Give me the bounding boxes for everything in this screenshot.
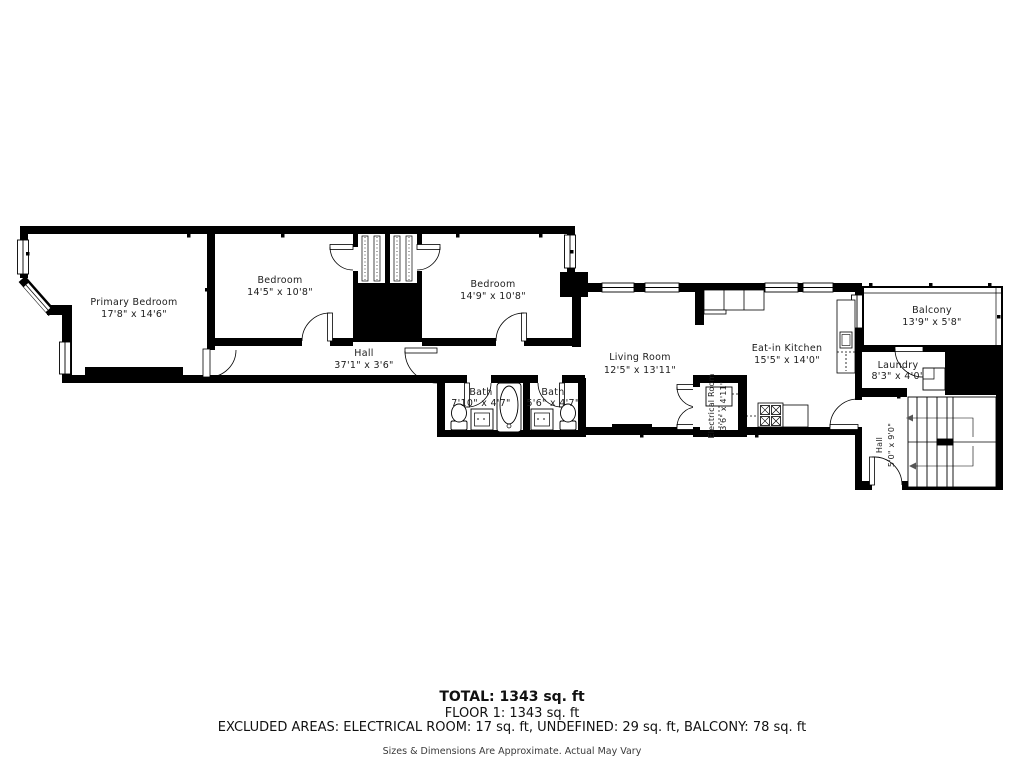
room-laundry: Laundry 8'3" x 4'0" [871, 360, 924, 382]
door-bedroom-2 [496, 313, 527, 341]
door-kitchen-hall [830, 399, 858, 430]
door-openings [353, 247, 863, 427]
room-living-room: Living Room 12'5" x 13'11" [604, 352, 676, 376]
svg-text:7'10" x 4'7": 7'10" x 4'7" [451, 398, 510, 409]
svg-text:14'9" x 10'8": 14'9" x 10'8" [460, 291, 526, 302]
vanity-sink [531, 409, 553, 430]
vanity-sink [471, 409, 493, 430]
room-eat-in-kitchen: Eat-in Kitchen 15'5" x 14'0" [752, 343, 823, 366]
svg-text:14'5" x 10'8": 14'5" x 10'8" [247, 287, 313, 298]
svg-text:5'6" x 4'7": 5'6" x 4'7" [526, 398, 579, 409]
floor-area: FLOOR 1: 1343 sq. ft [0, 707, 1024, 721]
svg-text:12'5" x 13'11": 12'5" x 13'11" [604, 365, 676, 376]
counter-sink [837, 300, 855, 373]
svg-text:Balcony: Balcony [912, 305, 952, 316]
door-primary-bedroom [203, 349, 236, 377]
svg-text:15'5" x 14'0": 15'5" x 14'0" [754, 355, 820, 366]
svg-text:3'6" x 4'11": 3'6" x 4'11" [719, 381, 728, 430]
svg-text:Bedroom: Bedroom [257, 275, 302, 286]
total-area: TOTAL: 1343 sq. ft [0, 690, 1024, 705]
floor-plan: Primary Bedroom 17'8" x 14'6" Bedroom 14… [0, 0, 1024, 768]
room-primary-bedroom: Primary Bedroom 17'8" x 14'6" [90, 297, 177, 320]
door-bedroom-1 [302, 313, 333, 341]
svg-text:Bath: Bath [469, 387, 492, 398]
door-stair-hall [870, 457, 903, 485]
room-bedroom-2: Bedroom 14'9" x 10'8" [460, 279, 526, 302]
laundry-appliance [923, 368, 945, 390]
room-bedroom-1: Bedroom 14'5" x 10'8" [247, 275, 313, 298]
svg-text:Laundry: Laundry [878, 360, 919, 371]
window [765, 283, 798, 292]
svg-text:Eat-in Kitchen: Eat-in Kitchen [752, 343, 823, 354]
window [803, 283, 833, 292]
room-bath-2: Bath 5'6" x 4'7" [526, 387, 579, 409]
door-closet-1 [330, 245, 353, 271]
summary-block: TOTAL: 1343 sq. ft FLOOR 1: 1343 sq. ft … [0, 690, 1024, 757]
upper-cabinets [704, 290, 764, 314]
stair-landing-divider [937, 439, 953, 445]
svg-text:Bath: Bath [541, 387, 564, 398]
room-balcony: Balcony 13'9" x 5'8" [902, 305, 961, 328]
window [602, 283, 634, 292]
svg-text:5'0" x 9'0": 5'0" x 9'0" [887, 423, 896, 467]
floor-plan-page: Primary Bedroom 17'8" x 14'6" Bedroom 14… [0, 0, 1024, 768]
svg-text:Primary Bedroom: Primary Bedroom [90, 297, 177, 308]
window [18, 240, 29, 274]
svg-text:Hall: Hall [354, 348, 373, 359]
window [645, 283, 679, 292]
window [60, 342, 71, 374]
svg-text:17'8" x 14'6": 17'8" x 14'6" [101, 309, 167, 320]
bay-window [22, 279, 52, 313]
counter [783, 405, 808, 427]
svg-text:37'1" x 3'6": 37'1" x 3'6" [334, 360, 393, 371]
svg-text:Hall: Hall [875, 437, 884, 453]
walls [20, 226, 1003, 490]
stairs [906, 397, 996, 487]
room-hall: Hall 37'1" x 3'6" [334, 348, 393, 371]
excluded-areas: EXCLUDED AREAS: ELECTRICAL ROOM: 17 sq. … [0, 721, 1024, 735]
svg-text:13'9" x 5'8": 13'9" x 5'8" [902, 317, 961, 328]
disclaimer: Sizes & Dimensions Are Approximate. Actu… [0, 746, 1024, 757]
svg-text:8'3" x 4'0": 8'3" x 4'0" [871, 371, 924, 382]
svg-text:Bedroom: Bedroom [470, 279, 515, 290]
svg-text:Electrical Room: Electrical Room [707, 373, 716, 438]
room-hall-2: Hall 5'0" x 9'0" [875, 423, 896, 467]
svg-text:Living Room: Living Room [609, 352, 671, 363]
stove [758, 403, 783, 427]
